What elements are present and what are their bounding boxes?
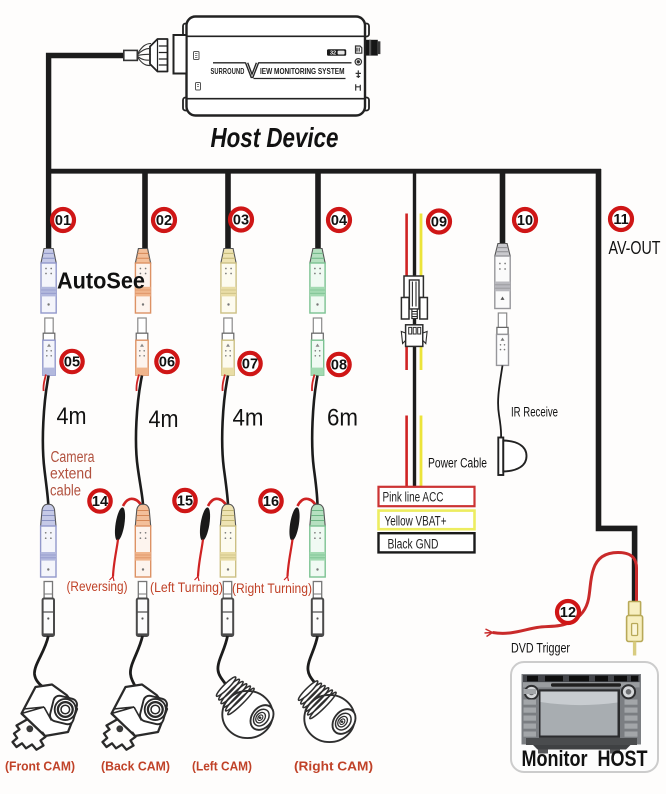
- svg-text:Yellow VBAT+: Yellow VBAT+: [385, 514, 447, 529]
- svg-text:05: 05: [64, 355, 80, 371]
- svg-text:15: 15: [177, 494, 193, 510]
- svg-text:(Left CAM): (Left CAM): [192, 759, 252, 774]
- svg-text:11: 11: [613, 212, 628, 228]
- svg-text:6m: 6m: [327, 405, 358, 432]
- svg-text:Host Device: Host Device: [211, 122, 339, 153]
- svg-text:Power Cable: Power Cable: [428, 456, 487, 471]
- svg-text:extend: extend: [50, 466, 92, 483]
- svg-text:02: 02: [156, 213, 172, 229]
- svg-text:4m: 4m: [149, 406, 179, 433]
- svg-text:Black GND: Black GND: [388, 537, 439, 552]
- svg-text:DVD Trigger: DVD Trigger: [511, 641, 570, 656]
- svg-text:4m: 4m: [233, 405, 264, 432]
- svg-text:IR Receive: IR Receive: [511, 405, 558, 420]
- svg-text:(Right CAM): (Right CAM): [294, 759, 373, 774]
- svg-text:IEW MONITORING SYSTEM: IEW MONITORING SYSTEM: [260, 66, 345, 76]
- svg-text:(Reversing): (Reversing): [67, 578, 128, 594]
- svg-text:10: 10: [517, 213, 533, 229]
- svg-text:03: 03: [233, 213, 249, 229]
- svg-text:01: 01: [55, 213, 71, 229]
- svg-text:Monitor HOST: Monitor HOST: [522, 746, 648, 771]
- svg-text:AutoSee: AutoSee: [57, 268, 145, 294]
- svg-text:07: 07: [242, 357, 258, 373]
- svg-text:cable: cable: [50, 483, 81, 500]
- svg-text:(Front CAM): (Front CAM): [5, 759, 75, 774]
- svg-text:12: 12: [560, 605, 576, 621]
- svg-text:09: 09: [431, 215, 447, 231]
- svg-text:(Right Turning): (Right Turning): [232, 580, 312, 596]
- svg-text:Pink line ACC: Pink line ACC: [383, 490, 444, 505]
- svg-text:16: 16: [263, 494, 279, 510]
- svg-text:4m: 4m: [57, 403, 87, 430]
- svg-text:08: 08: [331, 358, 347, 374]
- svg-text:06: 06: [159, 355, 175, 371]
- svg-text:SURROUND: SURROUND: [211, 66, 245, 76]
- svg-text:32: 32: [330, 51, 336, 57]
- svg-text:(Back CAM): (Back CAM): [101, 759, 170, 774]
- svg-text:14: 14: [92, 494, 108, 510]
- svg-text:Camera: Camera: [51, 449, 95, 466]
- svg-text:AV-OUT: AV-OUT: [609, 238, 661, 258]
- svg-text:04: 04: [331, 213, 347, 229]
- svg-text:(Left Turning): (Left Turning): [150, 579, 223, 595]
